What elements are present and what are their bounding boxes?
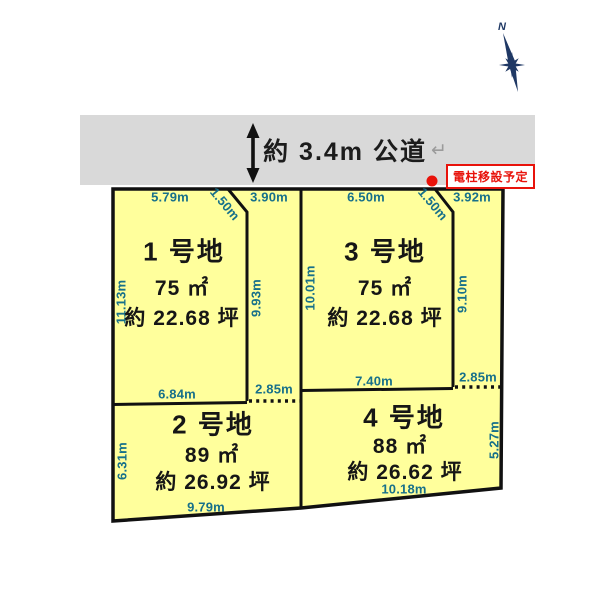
pole-relocation-note: 電柱移設予定 — [446, 164, 535, 189]
electric-pole-dot-icon — [427, 176, 438, 187]
parcel-outline — [113, 189, 503, 521]
diagram-canvas — [0, 0, 600, 596]
compass-icon — [499, 33, 525, 92]
land-plot-diagram: N 約 3.4m 公道 ↵ 電柱移設予定 5.79m 1.50m 3.90m 6… — [0, 0, 600, 596]
